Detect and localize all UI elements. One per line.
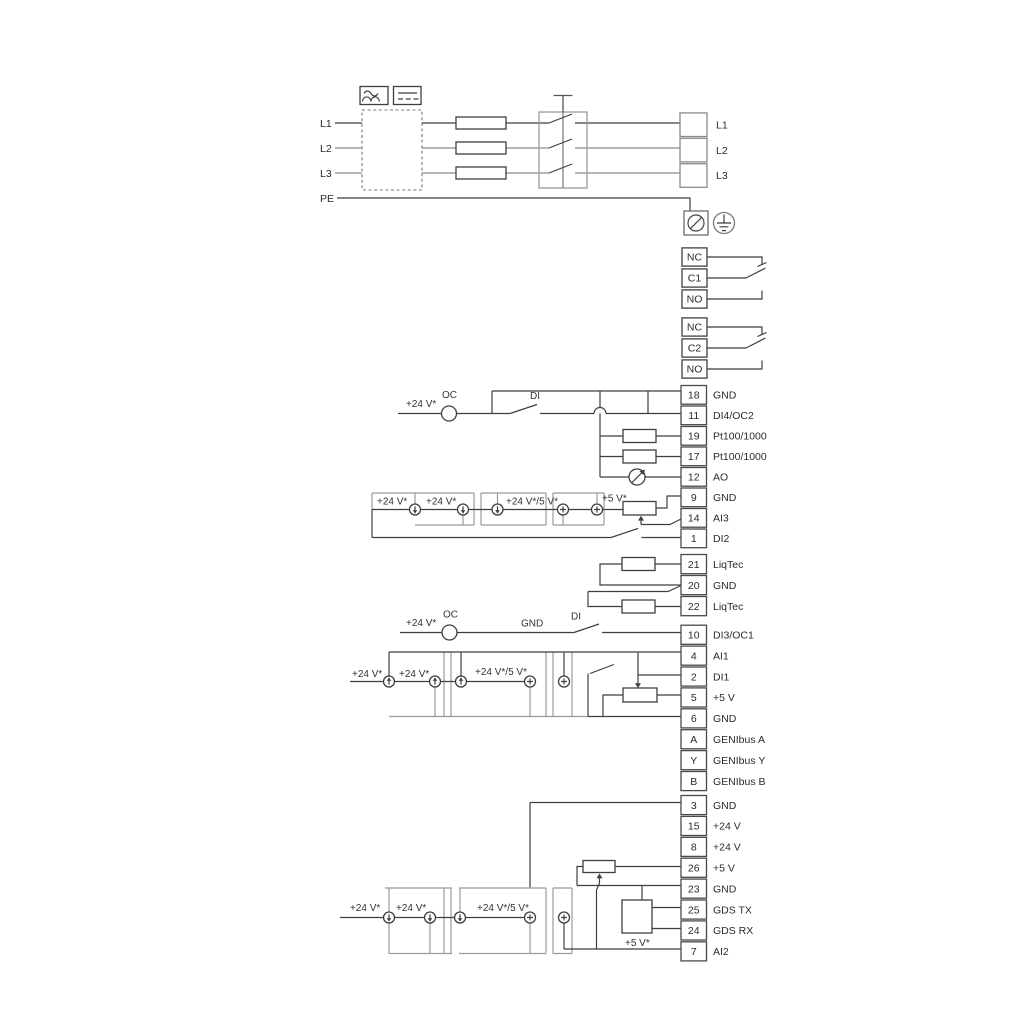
terminal-number: 9 xyxy=(691,492,697,504)
terminal-number: 4 xyxy=(691,650,697,662)
digital-io-wiring: DI +24 V* OC xyxy=(398,390,681,485)
terminal-number: 1 xyxy=(691,533,697,545)
oc-label: OC xyxy=(443,610,458,621)
di3-oc1-wiring: +24 V* OC GND DI xyxy=(400,610,681,641)
v24v5-label: +24 V*/5 V* xyxy=(506,497,558,508)
oc-label: OC xyxy=(442,390,457,401)
ai3-source-row: +24 V* +24 V* +24 V*/5 V* +5 V* xyxy=(372,493,681,538)
terminal-label: Pt100/1000 xyxy=(713,451,767,463)
v24v5-label: +24 V*/5 V* xyxy=(477,903,529,914)
earth-icon xyxy=(714,213,735,234)
terminal-label: AI3 xyxy=(713,513,729,525)
terminal-cell xyxy=(680,164,707,188)
v24v5-label: +24 V*/5 V* xyxy=(475,667,527,678)
input-label-pe: PE xyxy=(320,193,334,205)
terminal-number: 7 xyxy=(691,946,697,958)
open-collector-icon xyxy=(442,406,457,421)
terminal-number: 26 xyxy=(688,863,700,875)
open-collector-icon xyxy=(442,625,457,640)
terminal-number: 6 xyxy=(691,713,697,725)
di-label: DI xyxy=(530,391,540,402)
terminal-number: 22 xyxy=(688,601,700,613)
terminal-label: DI1 xyxy=(713,671,730,683)
relay-block-2: NC C2 NO xyxy=(682,318,767,378)
terminal-label: GENIbus A xyxy=(713,734,765,746)
relay-block-1: NC C1 NO xyxy=(682,248,767,308)
fuse-icon-l1 xyxy=(456,117,506,129)
relay2-contact-icon xyxy=(707,327,767,369)
terminal-number: 17 xyxy=(688,451,700,463)
terminal-label: +5 V xyxy=(713,692,735,704)
input-label-l2: L2 xyxy=(320,143,332,155)
terminal-number: 2 xyxy=(691,671,697,683)
terminal-label: LiqTec xyxy=(713,559,743,571)
relay1-contact-icon xyxy=(707,257,767,299)
v24-label: +24 V* xyxy=(426,497,456,508)
terminal-number: 20 xyxy=(688,580,700,592)
liqtec-wiring xyxy=(588,558,681,614)
terminal-label: L3 xyxy=(716,170,728,182)
liqtec-sensor-icon xyxy=(622,558,655,571)
terminal-label: GENIbus B xyxy=(713,776,766,788)
v24-label: +24 V* xyxy=(396,903,426,914)
terminal-number: 23 xyxy=(688,883,700,895)
terminal-label: GDS RX xyxy=(713,925,753,937)
potentiometer-icon xyxy=(623,688,657,702)
terminal-number: 24 xyxy=(688,925,700,937)
power-section: L1 L2 L3 PE xyxy=(320,87,735,236)
terminal-number: 18 xyxy=(688,390,700,402)
terminal-number: 12 xyxy=(688,472,700,484)
ai2-gds-wiring: +24 V* +24 V* +24 V*/5 V* +5 V* xyxy=(340,803,681,954)
terminal-cell xyxy=(680,138,707,162)
terminal-number: 3 xyxy=(691,800,697,812)
v24-label: +24 V* xyxy=(352,669,382,680)
liqtec-sensor-icon xyxy=(622,600,655,613)
terminal-label: LiqTec xyxy=(713,601,743,613)
wiring-diagram: L1 L2 L3 PE xyxy=(0,0,1024,1024)
terminal-label: +24 V xyxy=(713,842,741,854)
terminal-number: Y xyxy=(690,755,697,767)
gnd-label: GND xyxy=(521,619,543,630)
terminal-strips: 18GND11DI4/OC219Pt100/100017Pt100/100012… xyxy=(680,113,767,961)
relay1-label-c1: C1 xyxy=(688,273,702,285)
terminal-label: GND xyxy=(713,390,737,402)
filter-box-icon xyxy=(362,110,422,190)
terminal-label: AO xyxy=(713,472,728,484)
terminal-number: 14 xyxy=(688,513,700,525)
v5-label: +5 V* xyxy=(625,938,650,949)
v24-label: +24 V* xyxy=(377,497,407,508)
v24-label: +24 V* xyxy=(406,399,436,410)
terminal-label: GND xyxy=(713,492,737,504)
terminal-number: 8 xyxy=(691,842,697,854)
terminal-label: L1 xyxy=(716,119,728,131)
relay1-label-nc: NC xyxy=(687,252,703,264)
terminal-number: 25 xyxy=(688,904,700,916)
relay2-label-no: NO xyxy=(687,364,703,376)
terminal-label: AI2 xyxy=(713,946,729,958)
terminal-cell xyxy=(680,113,707,137)
terminal-label: +24 V xyxy=(713,821,741,833)
v24-label: +24 V* xyxy=(399,669,429,680)
ac-icon xyxy=(360,87,388,105)
terminal-label: GENIbus Y xyxy=(713,755,765,767)
terminal-label: DI3/OC1 xyxy=(713,630,754,642)
isolator-switch-icon xyxy=(539,96,587,189)
terminal-number: 21 xyxy=(688,559,700,571)
relay2-label-nc: NC xyxy=(687,322,703,334)
terminal-number: A xyxy=(690,734,697,746)
potentiometer-icon xyxy=(623,502,656,516)
relay1-label-no: NO xyxy=(687,294,703,306)
terminal-label: GDS TX xyxy=(713,904,752,916)
gds-sensor-icon xyxy=(622,900,652,933)
terminal-number: 11 xyxy=(688,410,699,422)
terminal-number: 5 xyxy=(691,692,697,704)
input-label-l1: L1 xyxy=(320,118,332,130)
pt100-sensor-icon xyxy=(623,450,656,463)
ai1-source-row: +24 V* +24 V* +24 V*/5 V* xyxy=(350,652,681,717)
analog-output-meter-icon xyxy=(629,469,645,485)
terminal-label: GND xyxy=(713,580,737,592)
terminal-number: 19 xyxy=(688,431,700,443)
terminal-label: GND xyxy=(713,800,737,812)
relay2-label-c2: C2 xyxy=(688,343,702,355)
wire-jump-icon xyxy=(594,408,606,414)
terminal-label: Pt100/1000 xyxy=(713,431,767,443)
v24-label: +24 V* xyxy=(406,618,436,629)
terminal-label: AI1 xyxy=(713,650,729,662)
terminal-label: +5 V xyxy=(713,863,735,875)
dc-icon xyxy=(394,87,422,105)
input-label-l3: L3 xyxy=(320,168,332,180)
fuse-icon-l3 xyxy=(456,167,506,179)
pt100-sensor-icon xyxy=(623,430,656,443)
terminal-number: 10 xyxy=(688,630,700,642)
wire-pe xyxy=(337,198,690,211)
terminal-label: DI4/OC2 xyxy=(713,410,754,422)
terminal-label: L2 xyxy=(716,145,728,157)
fuse-icon-l2 xyxy=(456,142,506,154)
terminal-number: B xyxy=(690,776,697,788)
di2-switch-icon xyxy=(372,529,681,538)
terminal-number: 15 xyxy=(688,821,700,833)
terminal-label: DI2 xyxy=(713,533,730,545)
potentiometer-icon xyxy=(583,861,615,873)
terminal-label: GND xyxy=(713,713,737,725)
di-label: DI xyxy=(571,612,581,623)
terminal-label: GND xyxy=(713,883,737,895)
pe-terminal-icon xyxy=(684,211,708,235)
v24-label: +24 V* xyxy=(350,903,380,914)
